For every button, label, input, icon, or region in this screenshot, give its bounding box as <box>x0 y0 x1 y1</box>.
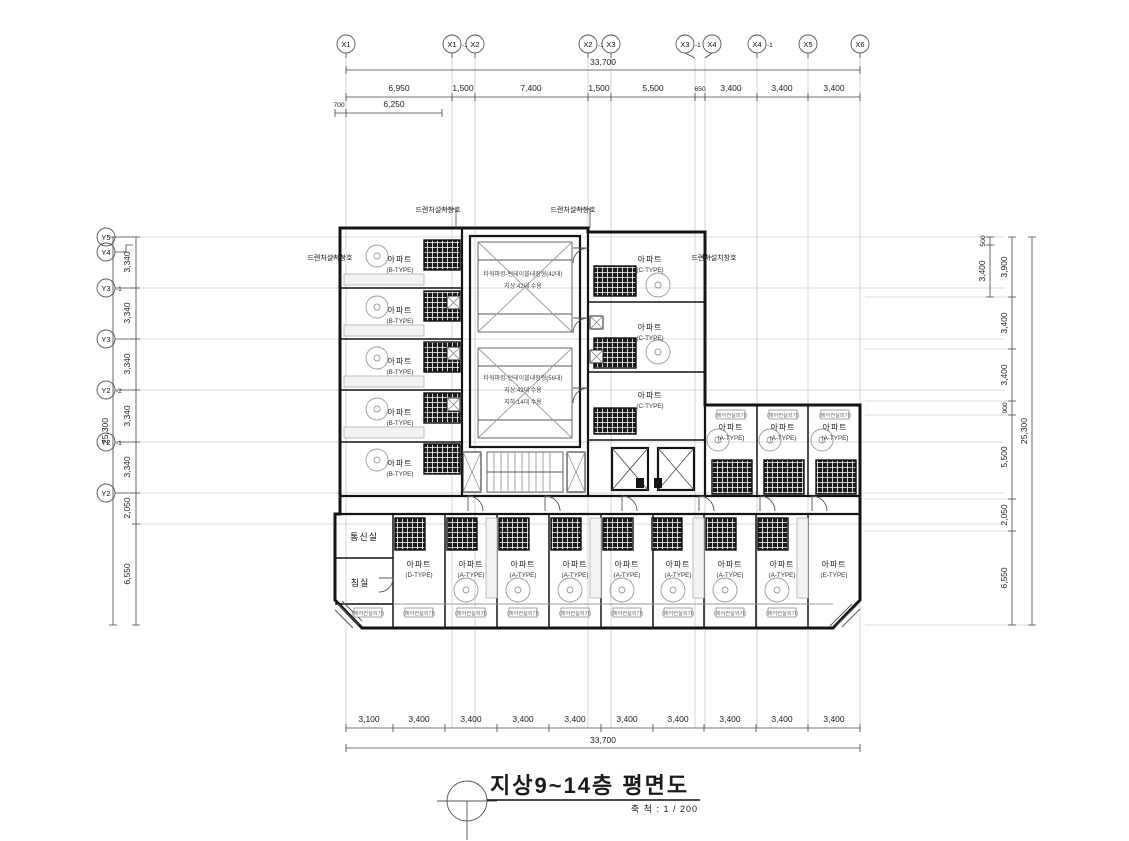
svg-text:아파트: 아파트 <box>770 422 795 432</box>
svg-text:지하:14대 수용: 지하:14대 수용 <box>504 398 542 406</box>
svg-text:(C-TYPE): (C-TYPE) <box>636 335 663 342</box>
svg-text:3,400: 3,400 <box>823 83 845 93</box>
axis-bubble-y3-1: Y3-1 <box>97 279 122 297</box>
svg-text:(A-TYPE): (A-TYPE) <box>665 572 692 579</box>
svg-text:X3: X3 <box>606 40 615 49</box>
svg-text:아파트: 아파트 <box>637 390 662 400</box>
svg-text:3,400: 3,400 <box>408 714 430 724</box>
dim-right-total: 25,300 <box>1019 418 1029 444</box>
svg-text:5,500: 5,500 <box>999 446 1009 468</box>
svg-text:3,400: 3,400 <box>512 714 534 724</box>
axis-bubble-y2-2: Y2-2 <box>97 381 122 399</box>
svg-text:3,400: 3,400 <box>719 714 741 724</box>
svg-text:3,340: 3,340 <box>122 456 132 478</box>
svg-text:(에어컨실외기): (에어컨실외기) <box>819 411 851 419</box>
svg-text:-2: -2 <box>116 388 122 395</box>
svg-text:(A-TYPE): (A-TYPE) <box>614 572 641 579</box>
svg-text:Y3: Y3 <box>101 284 110 293</box>
svg-text:X2: X2 <box>583 40 592 49</box>
svg-text:-1: -1 <box>116 440 122 447</box>
dim-top-total: 33,700 <box>590 57 616 67</box>
svg-text:(A-TYPE): (A-TYPE) <box>769 572 796 579</box>
svg-text:X6: X6 <box>855 40 864 49</box>
bottom-unit-labels: 아파트(D-TYPE) 아파트(A-TYPE) 아파트(A-TYPE) 아파트(… <box>405 559 847 579</box>
svg-text:3,340: 3,340 <box>122 405 132 427</box>
svg-text:3,400: 3,400 <box>999 364 1009 386</box>
bathroom-pods <box>395 240 856 550</box>
svg-text:(A-TYPE): (A-TYPE) <box>562 572 589 579</box>
svg-text:(B-TYPE): (B-TYPE) <box>387 369 414 376</box>
svg-text:(B-TYPE): (B-TYPE) <box>387 318 414 325</box>
svg-text:(에어컨실외기): (에어컨실외기) <box>403 609 435 617</box>
svg-text:3,340: 3,340 <box>122 353 132 375</box>
svg-text:X2: X2 <box>470 40 479 49</box>
drencher-label-top-1: 드렌처설치창호 <box>415 205 461 214</box>
x-axis-bubbles: X1 X1-1 X2 X2-1 X3 X3-1 X4 X4-1 X5 X6 <box>337 35 869 58</box>
parking-shaft-lower: 타워파킹-턴테이블내장형(56대) 지상:42대 수용 지하:14대 수용 <box>478 348 572 438</box>
svg-text:(A-TYPE): (A-TYPE) <box>718 435 745 442</box>
axis-bubble-x3: X3 <box>602 35 620 53</box>
svg-text:아파트: 아파트 <box>637 254 662 264</box>
parking-shaft-upper: 타워파킹-턴테이블내장형(42대) 지상:42대 수용 <box>478 242 572 332</box>
svg-text:(에어컨실외기): (에어컨실외기) <box>559 609 591 617</box>
svg-text:Y3: Y3 <box>101 335 110 344</box>
svg-text:6,250: 6,250 <box>383 99 405 109</box>
svg-text:3,400: 3,400 <box>771 83 793 93</box>
svg-text:(B-TYPE): (B-TYPE) <box>387 471 414 478</box>
svg-text:아파트: 아파트 <box>822 422 847 432</box>
svg-text:아파트: 아파트 <box>637 322 662 332</box>
dim-bottom-total: 33,700 <box>590 735 616 745</box>
svg-text:아파트: 아파트 <box>821 559 846 569</box>
svg-text:타워파킹-턴테이블내장형(56대): 타워파킹-턴테이블내장형(56대) <box>484 374 563 382</box>
svg-text:(A-TYPE): (A-TYPE) <box>458 572 485 579</box>
svg-text:아파트: 아파트 <box>510 559 535 569</box>
svg-text:-1: -1 <box>695 42 701 49</box>
floor-plan-sheet: X1 X1-1 X2 X2-1 X3 X3-1 X4 X4-1 X5 X6 Y5… <box>0 0 1129 841</box>
room-label-bedroom: 침실 <box>351 578 370 588</box>
svg-text:500: 500 <box>980 235 987 247</box>
title-block: 지상9~14층 평면도 축 척 : 1 / 200 <box>437 773 700 840</box>
svg-text:아파트: 아파트 <box>717 559 742 569</box>
axis-bubble-x3-1: X3-1 <box>676 35 701 53</box>
svg-text:3,400: 3,400 <box>999 312 1009 334</box>
svg-text:Y2: Y2 <box>101 489 110 498</box>
svg-text:(에어컨실외기): (에어컨실외기) <box>507 609 539 617</box>
axis-bubble-y3: Y3 <box>97 330 115 348</box>
svg-text:2,050: 2,050 <box>999 504 1009 526</box>
svg-text:(C-TYPE): (C-TYPE) <box>636 403 663 410</box>
axis-bubble-y2: Y2 <box>97 484 115 502</box>
svg-text:2,050: 2,050 <box>122 497 132 519</box>
axis-bubble-x1: X1 <box>337 35 355 53</box>
sheet-title: 지상9~14층 평면도 <box>490 773 689 798</box>
sheet-scale: 축 척 : 1 / 200 <box>631 804 698 814</box>
svg-text:Y4: Y4 <box>101 248 110 257</box>
svg-text:아파트: 아파트 <box>665 559 690 569</box>
svg-text:(C-TYPE): (C-TYPE) <box>636 267 663 274</box>
svg-text:(에어컨실외기): (에어컨실외기) <box>767 411 799 419</box>
svg-text:X4: X4 <box>752 40 761 49</box>
svg-text:6,550: 6,550 <box>999 567 1009 589</box>
dim-chain-top: 33,700 6,950 1,500 7,400 1,500 5,500 650… <box>333 57 860 117</box>
axis-bubble-x5: X5 <box>799 35 817 53</box>
svg-text:3,400: 3,400 <box>667 714 689 724</box>
svg-text:아파트: 아파트 <box>406 559 431 569</box>
svg-text:6,550: 6,550 <box>122 563 132 585</box>
dim-chain-bottom: 3,100 3,400 3,400 3,400 3,400 3,400 3,40… <box>346 714 860 752</box>
svg-text:3,400: 3,400 <box>720 83 742 93</box>
drencher-label-west: 드렌처설치창호 <box>307 253 353 262</box>
svg-text:아파트: 아파트 <box>562 559 587 569</box>
dim-chain-left: 3,340 3,340 3,340 3,340 3,340 2,050 6,55… <box>100 237 140 625</box>
axis-bubble-x6: X6 <box>851 35 869 53</box>
svg-text:지상:42대 수용: 지상:42대 수용 <box>504 386 542 394</box>
svg-text:(D-TYPE): (D-TYPE) <box>405 572 432 579</box>
svg-text:3,400: 3,400 <box>616 714 638 724</box>
svg-text:6,950: 6,950 <box>388 83 410 93</box>
svg-text:아파트: 아파트 <box>387 305 412 315</box>
svg-text:3,400: 3,400 <box>460 714 482 724</box>
tower-parking-core: 타워파킹-턴테이블내장형(42대) 지상:42대 수용 타워파킹-턴테이블내장형… <box>463 236 585 492</box>
svg-text:아파트: 아파트 <box>769 559 794 569</box>
svg-text:1,500: 1,500 <box>588 83 610 93</box>
axis-bubble-x4-1: X4-1 <box>748 35 773 53</box>
room-label-comm: 통신실 <box>350 532 378 542</box>
svg-text:3,400: 3,400 <box>977 260 987 282</box>
svg-text:3,100: 3,100 <box>358 714 380 724</box>
svg-text:(E-TYPE): (E-TYPE) <box>821 572 848 579</box>
svg-text:아파트: 아파트 <box>387 254 412 264</box>
svg-text:(A-TYPE): (A-TYPE) <box>822 435 849 442</box>
svg-text:3,400: 3,400 <box>771 714 793 724</box>
svg-text:700: 700 <box>333 102 345 109</box>
dim-chain-right: 500 3,400 3,900 3,400 3,400 900 5,500 2,… <box>865 235 1036 625</box>
svg-text:3,340: 3,340 <box>122 251 132 273</box>
svg-text:(에어컨실외기): (에어컨실외기) <box>766 609 798 617</box>
svg-text:3,400: 3,400 <box>823 714 845 724</box>
svg-text:(A-TYPE): (A-TYPE) <box>717 572 744 579</box>
axis-bubble-x1-1: X1-1 <box>443 35 468 53</box>
east-unit-labels: 아파트(A-TYPE) 아파트(A-TYPE) 아파트(A-TYPE) <box>718 422 849 442</box>
dim-left-total: 25,300 <box>100 418 110 444</box>
svg-text:650: 650 <box>694 86 706 93</box>
svg-text:1,500: 1,500 <box>452 83 474 93</box>
svg-text:(에어컨실외기): (에어컨실외기) <box>715 411 747 419</box>
svg-text:지상:42대 수용: 지상:42대 수용 <box>504 282 542 290</box>
svg-text:타워파킹-턴테이블내장형(42대): 타워파킹-턴테이블내장형(42대) <box>484 270 563 278</box>
svg-text:X4: X4 <box>707 40 716 49</box>
axis-bubble-x2: X2 <box>466 35 484 53</box>
axis-bubble-x4: X4 <box>703 35 721 53</box>
elevator-core <box>612 448 694 490</box>
drencher-label-top-2: 드렌처설치창호 <box>550 205 596 214</box>
svg-text:(에어컨실외기): (에어컨실외기) <box>714 609 746 617</box>
svg-text:X5: X5 <box>803 40 812 49</box>
axis-bubble-x2-1: X2-1 <box>579 35 604 53</box>
svg-text:X3: X3 <box>680 40 689 49</box>
floor-plan-drawing: X1 X1-1 X2 X2-1 X3 X3-1 X4 X4-1 X5 X6 Y5… <box>0 0 1129 841</box>
right-unit-labels: 아파트(C-TYPE) 아파트(C-TYPE) 아파트(C-TYPE) <box>636 254 663 410</box>
svg-text:3,400: 3,400 <box>564 714 586 724</box>
svg-text:(에어컨실외기): (에어컨실외기) <box>455 609 487 617</box>
stair <box>487 452 563 492</box>
svg-text:아파트: 아파트 <box>387 458 412 468</box>
svg-text:Y2: Y2 <box>101 386 110 395</box>
svg-text:5,500: 5,500 <box>642 83 664 93</box>
svg-text:X1: X1 <box>447 40 456 49</box>
svg-text:(에어컨실외기): (에어컨실외기) <box>352 609 384 617</box>
svg-text:아파트: 아파트 <box>387 356 412 366</box>
svg-text:(에어컨실외기): (에어컨실외기) <box>611 609 643 617</box>
svg-text:-1: -1 <box>767 42 773 49</box>
svg-text:(A-TYPE): (A-TYPE) <box>510 572 537 579</box>
svg-text:(B-TYPE): (B-TYPE) <box>387 267 414 274</box>
svg-text:아파트: 아파트 <box>718 422 743 432</box>
svg-text:아파트: 아파트 <box>458 559 483 569</box>
svg-text:(B-TYPE): (B-TYPE) <box>387 420 414 427</box>
svg-text:7,400: 7,400 <box>520 83 542 93</box>
svg-text:(에어컨실외기): (에어컨실외기) <box>662 609 694 617</box>
svg-text:3,900: 3,900 <box>999 256 1009 278</box>
svg-text:3,340: 3,340 <box>122 302 132 324</box>
svg-text:900: 900 <box>1002 402 1009 414</box>
svg-text:아파트: 아파트 <box>614 559 639 569</box>
svg-text:(A-TYPE): (A-TYPE) <box>770 435 797 442</box>
axis-label: X1 <box>341 40 350 49</box>
svg-text:Y5: Y5 <box>101 233 110 242</box>
svg-text:-1: -1 <box>116 286 122 293</box>
drencher-label-east: 드렌처설치창호 <box>691 253 737 262</box>
svg-text:아파트: 아파트 <box>387 407 412 417</box>
